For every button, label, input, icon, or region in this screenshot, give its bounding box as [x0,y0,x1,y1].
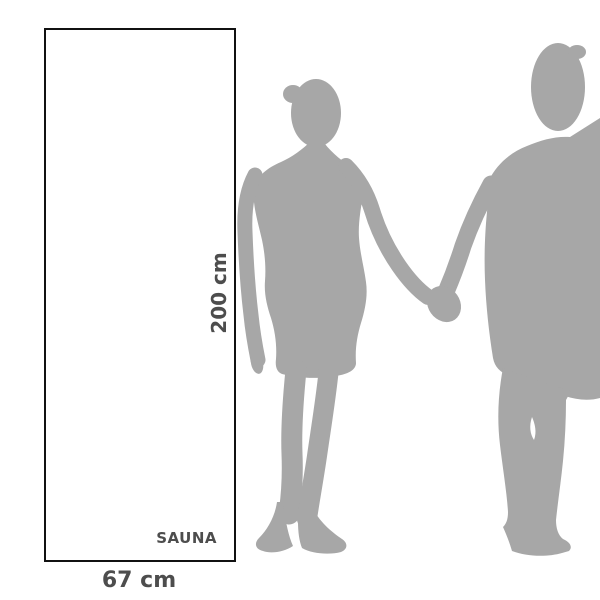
size-comparison-scene: 200 cm SAUNA 67 cm [0,0,600,600]
size-comparison-graphic: 200 cm SAUNA 67 cm [0,0,600,600]
towel-brand-label: SAUNA [156,529,217,547]
man-hair [568,45,586,59]
man-silhouette [420,43,600,556]
woman-back-leg [307,368,329,519]
woman-back-foot [298,506,346,554]
man-torso [485,118,600,400]
towel-height-label: 200 cm [207,252,231,333]
woman-front-leg [289,370,296,514]
towel-width-label: 67 cm [102,568,176,593]
woman-head [291,79,341,147]
man-right-arm [446,184,491,292]
woman-silhouette [245,79,428,554]
man-legs [498,368,571,556]
